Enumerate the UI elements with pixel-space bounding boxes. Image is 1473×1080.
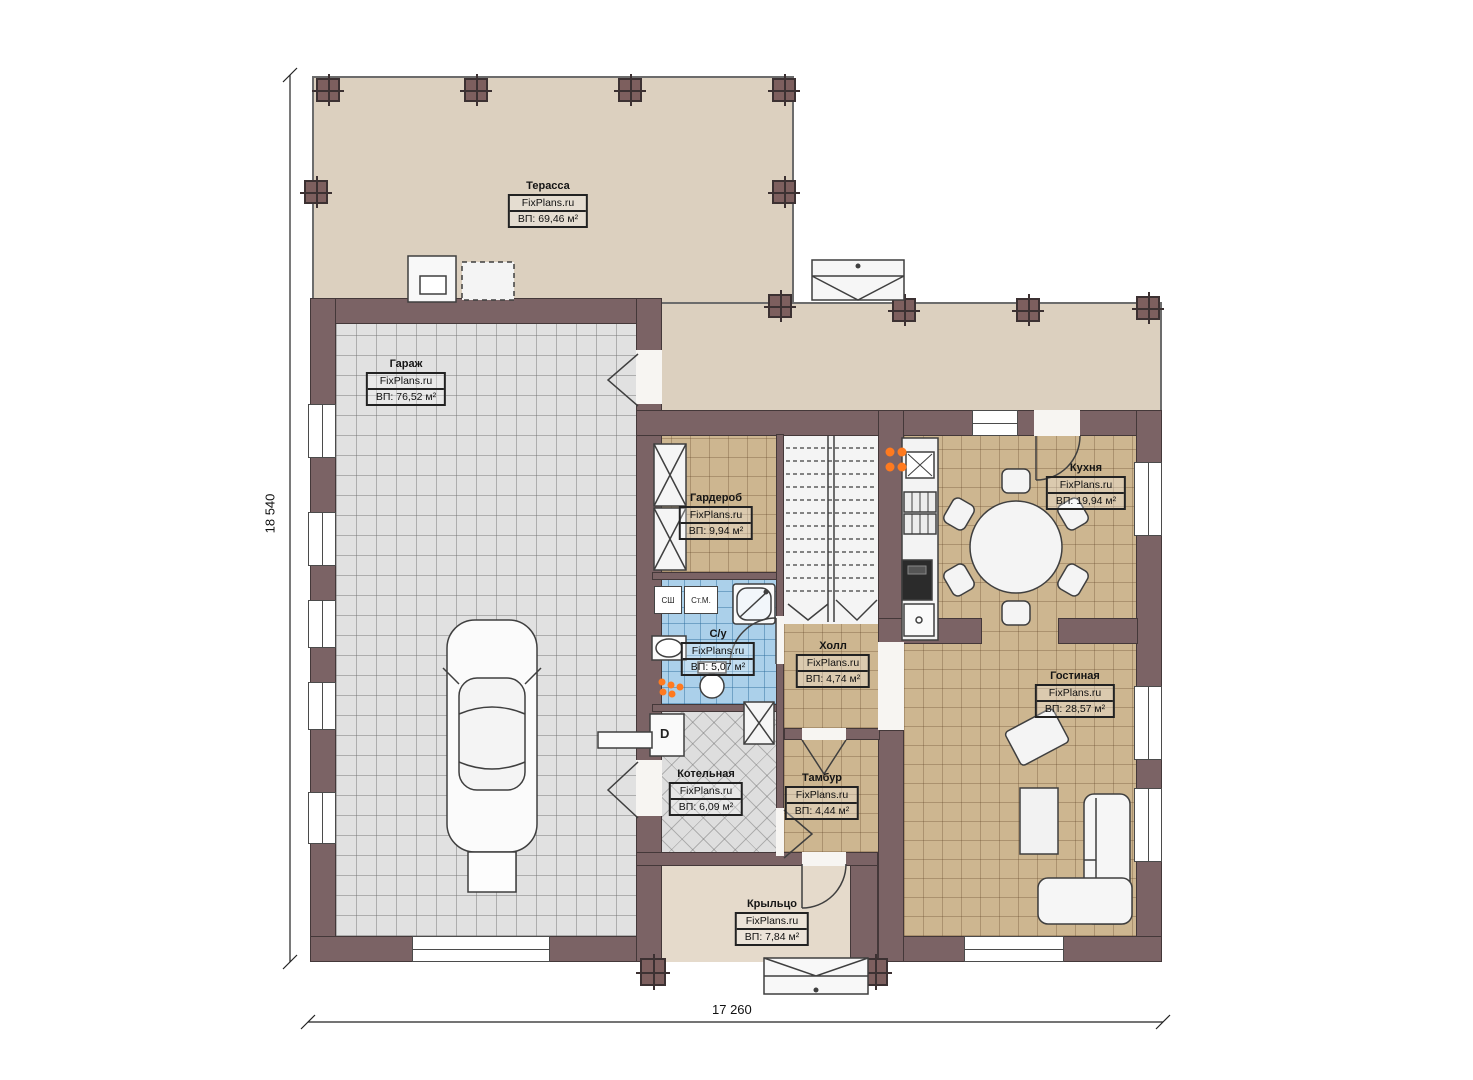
boiler-unit-tag: D: [660, 726, 669, 741]
room-area: ВП: 28,57 м²: [1037, 702, 1113, 716]
workbench-icon: [598, 732, 652, 748]
brand-text: FixPlans.ru: [737, 914, 807, 930]
room-label-garage: Гараж FixPlans.ru ВП: 76,52 м²: [366, 358, 446, 406]
dimension-horizontal: 17 260: [712, 1002, 752, 1017]
room-area: ВП: 4,44 м²: [787, 804, 857, 818]
room-name: Гардероб: [679, 492, 753, 504]
terrace-equipment-icon: [408, 256, 514, 302]
washer-tag: СШ: [654, 586, 682, 614]
kitchen-counter-icon: [902, 438, 938, 640]
room-label-porch: Крыльцо FixPlans.ru ВП: 7,84 м²: [735, 898, 809, 946]
brand-text: FixPlans.ru: [671, 784, 741, 800]
room-label-terrace: Терасса FixPlans.ru ВП: 69,46 м²: [508, 180, 588, 228]
room-name: Кухня: [1046, 462, 1126, 474]
room-label-living: Гостиная FixPlans.ru ВП: 28,57 м²: [1035, 670, 1115, 718]
room-area: ВП: 69,46 м²: [510, 212, 586, 226]
porch-steps-icon: [764, 958, 868, 994]
room-area: ВП: 19,94 м²: [1048, 494, 1124, 508]
room-area: ВП: 6,09 м²: [671, 800, 741, 814]
brand-text: FixPlans.ru: [510, 196, 586, 212]
room-name: Терасса: [508, 180, 588, 192]
room-area: ВП: 4,74 м²: [798, 672, 868, 686]
room-area: ВП: 9,94 м²: [681, 524, 751, 538]
brand-text: FixPlans.ru: [1037, 686, 1113, 702]
room-name: Гараж: [366, 358, 446, 370]
car-icon: [443, 620, 541, 892]
floor-plan: Терасса FixPlans.ru ВП: 69,46 м² Гараж F…: [0, 0, 1473, 1080]
room-name: Котельная: [669, 768, 743, 780]
staircase-icon: [786, 436, 877, 622]
room-name: Холл: [796, 640, 870, 652]
room-label-boiler: Котельная FixPlans.ru ВП: 6,09 м²: [669, 768, 743, 816]
room-label-hall: Холл FixPlans.ru ВП: 4,74 м²: [796, 640, 870, 688]
room-label-kitchen: Кухня FixPlans.ru ВП: 19,94 м²: [1046, 462, 1126, 510]
radiator-icon: [659, 679, 684, 698]
room-name: Тамбур: [785, 772, 859, 784]
room-name: Крыльцо: [735, 898, 809, 910]
brand-text: FixPlans.ru: [798, 656, 868, 672]
washing-machine-tag: Ст.М.: [684, 586, 718, 614]
terrace-steps-icon: [812, 260, 904, 300]
equipment-box-icon: [744, 702, 774, 744]
room-area: ВП: 76,52 м²: [368, 390, 444, 404]
room-name: Гостиная: [1035, 670, 1115, 682]
brand-text: FixPlans.ru: [1048, 478, 1124, 494]
room-label-bathroom: С/у FixPlans.ru ВП: 5,07 м²: [681, 628, 755, 676]
room-label-wardrobe: Гардероб FixPlans.ru ВП: 9,94 м²: [679, 492, 753, 540]
brand-text: FixPlans.ru: [681, 508, 751, 524]
room-label-tambour: Тамбур FixPlans.ru ВП: 4,44 м²: [785, 772, 859, 820]
brand-text: FixPlans.ru: [683, 644, 753, 660]
room-area: ВП: 7,84 м²: [737, 930, 807, 944]
coffee-table-icon: [1020, 788, 1058, 854]
dimension-vertical: 18 540: [262, 494, 277, 534]
room-name: С/у: [681, 628, 755, 640]
room-area: ВП: 5,07 м²: [683, 660, 753, 674]
brand-text: FixPlans.ru: [787, 788, 857, 804]
door-arcs: [608, 354, 1080, 908]
brand-text: FixPlans.ru: [368, 374, 444, 390]
